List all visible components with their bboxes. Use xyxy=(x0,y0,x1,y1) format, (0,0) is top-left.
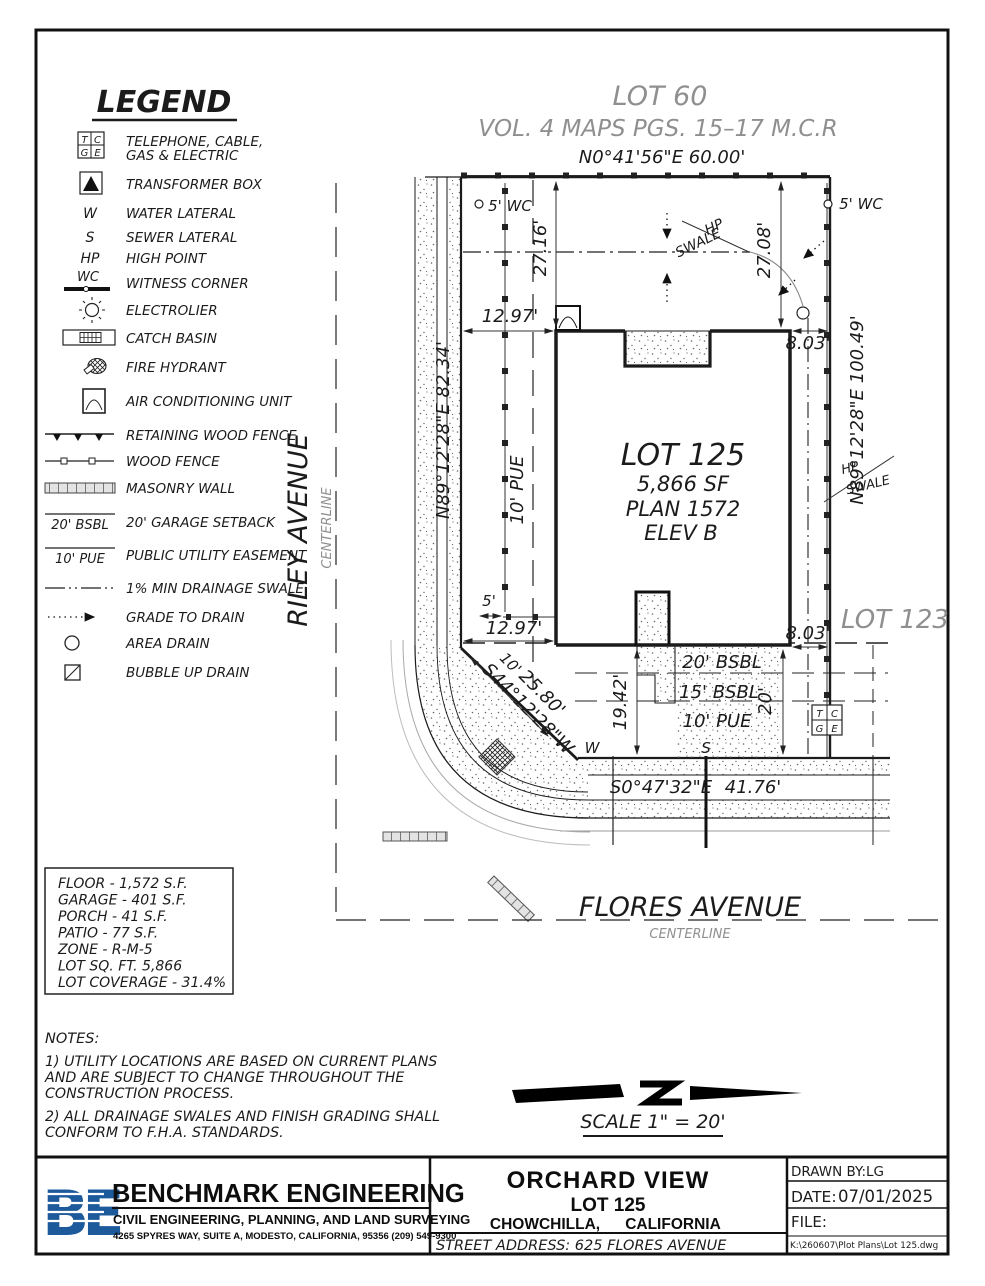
witness-corner-marker xyxy=(475,200,483,208)
tcge-g: G xyxy=(816,724,824,735)
legend-label-masonry: MASONRY WALL xyxy=(126,481,235,497)
legend-sewer-symbol: S xyxy=(86,230,95,246)
project-lot: LOT 125 xyxy=(571,1195,646,1216)
pue-label: 10' PUE xyxy=(507,455,528,525)
flores-avenue-label: FLORES AVENUE xyxy=(579,892,801,923)
svg-text:T: T xyxy=(81,135,88,146)
tcge-utility-box-icon: T C G E xyxy=(812,705,842,735)
legend-label-bubble-up: BUBBLE UP DRAIN xyxy=(126,665,249,681)
masonry-wall-segment xyxy=(383,832,447,841)
dim-8-03-bot: 8.03' xyxy=(785,623,830,644)
dim-27-08: 27.08' xyxy=(754,222,775,278)
scale-label: SCALE 1" = 20' xyxy=(580,1111,725,1133)
lot125-elev: ELEV B xyxy=(644,521,718,545)
file-label: FILE: xyxy=(791,1213,827,1231)
svg-text:WC: WC xyxy=(77,270,100,285)
benchmark-logo: BE xyxy=(42,1177,120,1250)
legend-label-ac-unit: AIR CONDITIONING UNIT xyxy=(125,394,293,410)
dim-5: 5' xyxy=(482,592,496,610)
legend-label-sewer: SEWER LATERAL xyxy=(126,230,237,246)
stat-zone: ZONE - R-M-5 xyxy=(57,942,153,958)
pue-10-label: 10' PUE xyxy=(683,711,753,732)
tcge-t: T xyxy=(816,709,823,720)
svg-text:20' BSBL: 20' BSBL xyxy=(51,518,109,533)
stat-garage: GARAGE - 401 S.F. xyxy=(58,893,187,909)
witness-corner-marker xyxy=(824,200,832,208)
bsbl-20-label: 20' BSBL xyxy=(682,652,762,673)
legend-label-water: WATER LATERAL xyxy=(126,206,236,222)
south-bearing-label: S0°47'32"E xyxy=(610,777,713,798)
lot125-area: 5,866 SF xyxy=(637,472,730,496)
stat-lot-coverage: LOT COVERAGE - 31.4% xyxy=(58,975,226,991)
svg-text:10' PUE: 10' PUE xyxy=(55,552,106,567)
legend-label-fire-hydrant: FIRE HYDRANT xyxy=(126,360,227,376)
drawn-by-value: LG xyxy=(866,1164,884,1180)
legend-label-swale: 1% MIN DRAINAGE SWALE xyxy=(126,581,304,597)
legend-label-tcge-2: GAS & ELECTRIC xyxy=(126,148,239,164)
lot125-name: LOT 125 xyxy=(621,438,746,473)
drawn-by-label: DRAWN BY: xyxy=(791,1164,866,1180)
date-value: 07/01/2025 xyxy=(838,1187,933,1206)
legend-water-symbol: W xyxy=(83,206,98,222)
lot123-label: LOT 123 xyxy=(841,605,949,635)
company-tagline: CIVIL ENGINEERING, PLANNING, AND LAND SU… xyxy=(113,1212,470,1227)
witness-corner-right-label: 5' WC xyxy=(839,195,883,213)
company-name: BENCHMARK ENGINEERING xyxy=(112,1180,465,1208)
legend-highpoint-symbol: HP xyxy=(81,251,101,267)
legend-masonry-wall-icon xyxy=(45,483,115,493)
svg-text:E: E xyxy=(94,148,101,159)
legend-label-electrolier: ELECTROLIER xyxy=(126,303,218,319)
west-bearing-label: N89°12'28"E 82.34' xyxy=(433,341,454,519)
water-lateral-label: W xyxy=(585,739,601,757)
dim-12-97-bot: 12.97' xyxy=(486,618,542,639)
date-label: DATE: xyxy=(791,1188,837,1206)
legend-catch-basin-icon xyxy=(63,330,115,345)
rear-porch xyxy=(636,592,669,645)
project-state: CALIFORNIA xyxy=(625,1216,721,1233)
legend-label-garage-setback: 20' GARAGE SETBACK xyxy=(126,515,276,531)
stat-porch: PORCH - 41 S.F. xyxy=(58,909,168,925)
witness-corner-left-label: 5' WC xyxy=(488,197,532,215)
svg-text:C: C xyxy=(94,135,101,146)
note-2-line-1: 2) ALL DRAINAGE SWALES AND FINISH GRADIN… xyxy=(45,1109,440,1125)
tcge-c: C xyxy=(831,709,838,720)
note-1-line-1: 1) UTILITY LOCATIONS ARE BASED ON CURREN… xyxy=(45,1054,437,1070)
project-title: ORCHARD VIEW xyxy=(507,1167,710,1194)
dim-12-97-top: 12.97' xyxy=(482,306,538,327)
legend-transformer-box-icon xyxy=(80,172,102,194)
dim-27-16: 27.16' xyxy=(530,220,551,276)
legend-label-transformer: TRANSFORMER BOX xyxy=(126,177,263,193)
stat-floor: FLOOR - 1,572 S.F. xyxy=(58,876,188,892)
plan-sheet: T C G E LOT 60 VOL. 4 MAPS PGS. 15–17 M.… xyxy=(0,0,985,1281)
lot60-label: LOT 60 xyxy=(613,81,708,112)
legend-title: LEGEND xyxy=(97,85,232,120)
lot60-map-reference: VOL. 4 MAPS PGS. 15–17 M.C.R xyxy=(478,116,837,142)
sewer-lateral-label: S xyxy=(701,739,711,757)
note-1-line-3: CONSTRUCTION PROCESS. xyxy=(45,1086,234,1102)
area-drain-icon xyxy=(797,307,809,319)
lot-stats-box: FLOOR - 1,572 S.F. GARAGE - 401 S.F. POR… xyxy=(45,868,233,994)
dim-19-42: 19.42' xyxy=(610,674,631,730)
legend-ac-unit-icon xyxy=(83,389,105,413)
legend-label-retaining-fence: RETAINING WOOD FENCE xyxy=(126,428,297,444)
porch-notch xyxy=(625,331,710,366)
stat-lot-sqft: LOT SQ. FT. 5,866 xyxy=(58,959,182,975)
air-conditioning-unit-icon xyxy=(556,306,580,330)
north-bearing-label: N0°41'56"E 60.00' xyxy=(579,147,746,168)
logo-be-text: BE xyxy=(42,1177,120,1250)
file-path: K:\260607\Plot Plans\Lot 125.dwg xyxy=(790,1241,938,1251)
legend-label-witness: WITNESS CORNER xyxy=(126,276,249,292)
dim-8-03-top: 8.03' xyxy=(785,333,830,354)
note-1-line-2: AND ARE SUBJECT TO CHANGE THROUGHOUT THE xyxy=(44,1070,404,1086)
company-address: 4265 SPYRES WAY, SUITE A, MODESTO, CALIF… xyxy=(113,1231,456,1242)
legend-label-grade-to-drain: GRADE TO DRAIN xyxy=(126,610,245,626)
legend-area-drain-icon xyxy=(65,636,79,650)
bsbl-15-label: 15' BSBL xyxy=(679,682,759,703)
flores-centerline-label: CENTERLINE xyxy=(649,927,731,942)
note-2-line-2: CONFORM TO F.H.A. STANDARDS. xyxy=(45,1125,284,1141)
notes-title: NOTES: xyxy=(45,1031,99,1047)
legend-label-highpoint: HIGH POINT xyxy=(126,251,208,267)
legend-label-pue: PUBLIC UTILITY EASEMENT xyxy=(126,548,308,564)
stat-patio: PATIO - 77 S.F. xyxy=(58,926,158,942)
svg-text:G: G xyxy=(81,148,89,159)
riley-centerline-label: CENTERLINE xyxy=(320,487,335,569)
south-distance-label: 41.76' xyxy=(725,777,781,798)
tcge-e: E xyxy=(831,724,838,735)
street-address: STREET ADDRESS: 625 FLORES AVENUE xyxy=(436,1238,727,1254)
project-city: CHOWCHILLA, xyxy=(490,1216,600,1233)
riley-avenue-label: RILEY AVENUE xyxy=(283,433,314,627)
legend-tcge-icon: T C G E xyxy=(78,132,104,159)
lot125-plan: PLAN 1572 xyxy=(626,497,741,521)
legend-label-area-drain: AREA DRAIN xyxy=(125,636,210,652)
legend-label-wood-fence: WOOD FENCE xyxy=(126,454,220,470)
legend-bubble-up-drain-icon xyxy=(65,665,80,680)
legend-label-catch-basin: CATCH BASIN xyxy=(126,331,217,347)
